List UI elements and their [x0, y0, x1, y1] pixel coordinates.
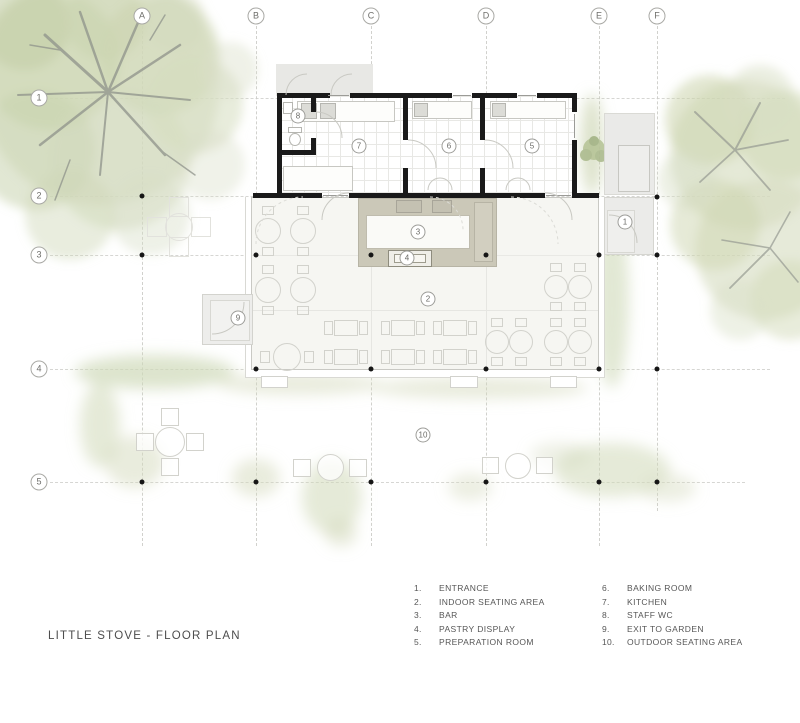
column-dot	[254, 480, 259, 485]
legend-item: 10.OUTDOOR SEATING AREA	[602, 637, 743, 651]
chair	[297, 247, 309, 256]
chair	[416, 321, 425, 335]
table-round	[255, 277, 281, 303]
legend-item-number: 7.	[602, 597, 620, 607]
room-badge-preparation: 5	[525, 139, 540, 154]
chair	[550, 302, 562, 311]
tree-right	[658, 65, 800, 340]
legend-item: 8.STAFF WC	[602, 610, 743, 624]
legend-item-number: 2.	[414, 597, 432, 607]
grid-col-marker: B	[248, 8, 265, 25]
wall-segment	[277, 150, 316, 155]
room-badge-indoor-seating: 2	[421, 292, 436, 307]
table-round	[544, 330, 568, 354]
wall-segment	[472, 93, 517, 98]
wall-segment	[349, 193, 545, 198]
chair	[324, 350, 333, 364]
chair-outdoor	[136, 433, 154, 451]
wc-toilet-bowl	[289, 133, 301, 146]
room-badge-bar: 3	[411, 225, 426, 240]
table-square	[443, 320, 467, 336]
wall-segment	[253, 193, 322, 198]
wall-segment	[311, 97, 316, 112]
wall-segment	[480, 168, 485, 193]
chair	[381, 321, 390, 335]
column-dot	[655, 253, 660, 258]
chair	[550, 318, 562, 327]
legend-item: 1.ENTRANCE	[414, 583, 545, 597]
table-round	[544, 275, 568, 299]
legend-item-label: KITCHEN	[627, 597, 667, 607]
wall-segment	[480, 97, 485, 140]
legend-column-2: 6.BAKING ROOM7.KITCHEN8.STAFF WC9.EXIT T…	[602, 583, 743, 651]
legend-item: 7.KITCHEN	[602, 597, 743, 611]
column-dot	[597, 367, 602, 372]
column-dot	[369, 480, 374, 485]
drawing-title: LITTLE STOVE - FLOOR PLAN	[48, 630, 241, 642]
chair	[262, 206, 274, 215]
window-line	[546, 195, 571, 196]
shrub-plant	[580, 136, 607, 162]
legend-item-number: 4.	[414, 624, 432, 634]
legend-item-number: 8.	[602, 610, 620, 620]
table-round	[568, 330, 592, 354]
room-badge-staff-wc: 8	[291, 109, 306, 124]
chair-outdoor	[349, 459, 367, 477]
deck-step	[450, 376, 478, 388]
grid-row-marker: 3	[31, 247, 48, 264]
table-round	[290, 277, 316, 303]
legend-item-label: OUTDOOR SEATING AREA	[627, 637, 743, 647]
table-round	[568, 275, 592, 299]
wall-segment	[572, 140, 577, 197]
bar-espresso-machine	[432, 200, 452, 213]
room-badge-baking: 6	[442, 139, 457, 154]
table-square	[391, 349, 415, 365]
chair	[491, 357, 503, 366]
chair-outdoor	[161, 408, 179, 426]
grid-row-marker: 5	[31, 474, 48, 491]
legend-item-label: BAR	[439, 610, 458, 620]
chair	[297, 265, 309, 274]
kitchen-island	[283, 166, 353, 191]
legend-item-label: PREPARATION ROOM	[439, 637, 534, 647]
chair	[468, 321, 477, 335]
column-dot	[597, 480, 602, 485]
table-round	[273, 343, 301, 371]
window-line	[328, 95, 349, 96]
back-canopy	[276, 64, 373, 96]
column-dot	[484, 367, 489, 372]
baking-oven	[414, 103, 428, 117]
chair	[381, 350, 390, 364]
column-dot	[140, 194, 145, 199]
legend-item-number: 9.	[602, 624, 620, 634]
legend-item-label: EXIT TO GARDEN	[627, 624, 704, 634]
column-dot	[597, 253, 602, 258]
service-porch-inner	[618, 145, 650, 192]
column-dot	[655, 195, 660, 200]
column-dot	[140, 253, 145, 258]
grid-row-marker: 1	[31, 90, 48, 107]
legend-item-number: 10.	[602, 637, 620, 647]
legend-item-label: INDOOR SEATING AREA	[439, 597, 545, 607]
chair	[416, 350, 425, 364]
column-dot	[254, 253, 259, 258]
column-dot	[484, 480, 489, 485]
grid-col-marker: A	[134, 8, 151, 25]
legend-item-label: STAFF WC	[627, 610, 673, 620]
wall-segment	[277, 93, 282, 197]
legend-item: 6.BAKING ROOM	[602, 583, 743, 597]
window-line	[453, 95, 471, 96]
grid-col-marker: E	[591, 8, 608, 25]
wall-segment	[572, 193, 599, 198]
chair-outdoor	[147, 217, 167, 237]
legend-item: 2.INDOOR SEATING AREA	[414, 597, 545, 611]
table-square	[334, 349, 358, 365]
chair-outdoor	[186, 433, 204, 451]
legend-item-number: 3.	[414, 610, 432, 620]
chair	[304, 351, 314, 363]
chair	[324, 321, 333, 335]
legend-item-label: ENTRANCE	[439, 583, 489, 593]
legend-item-number: 1.	[414, 583, 432, 593]
chair	[468, 350, 477, 364]
chair	[262, 306, 274, 315]
grid-col-line	[142, 26, 143, 546]
chair	[297, 206, 309, 215]
column-dot	[254, 367, 259, 372]
chair-outdoor	[169, 237, 189, 257]
tree-top-left	[0, 0, 258, 260]
wall-segment	[277, 93, 330, 98]
grid-col-marker: F	[649, 8, 666, 25]
chair	[574, 318, 586, 327]
grid-row-marker: 4	[31, 361, 48, 378]
wall-segment	[537, 93, 577, 98]
chair-outdoor	[191, 217, 211, 237]
room-badge-outdoor-seating: 10	[416, 428, 431, 443]
table-square	[391, 320, 415, 336]
column-dot	[369, 367, 374, 372]
deck-step	[261, 376, 288, 388]
legend-item: 3.BAR	[414, 610, 545, 624]
grid-row-marker: 2	[31, 188, 48, 205]
table-round	[290, 218, 316, 244]
column-dot	[369, 253, 374, 258]
chair	[433, 321, 442, 335]
legend-item: 4.PASTRY DISPLAY	[414, 624, 545, 638]
tree-top-left-branches	[18, 12, 195, 200]
legend-item-number: 5.	[414, 637, 432, 647]
chair-outdoor	[293, 459, 311, 477]
chair	[359, 321, 368, 335]
wall-segment	[572, 93, 577, 112]
room-badge-garden-exit: 9	[231, 311, 246, 326]
legend-item-label: PASTRY DISPLAY	[439, 624, 515, 634]
kitchen-appliance	[320, 103, 336, 119]
wall-segment	[403, 168, 408, 193]
wall-segment	[350, 93, 452, 98]
wall-segment	[403, 97, 408, 140]
legend-item: 5.PREPARATION ROOM	[414, 637, 545, 651]
prep-appliance	[492, 103, 506, 117]
chair-outdoor	[482, 457, 499, 474]
legend-item-number: 6.	[602, 583, 620, 593]
chair	[515, 318, 527, 327]
chair	[260, 351, 270, 363]
table-square	[443, 349, 467, 365]
chair	[433, 350, 442, 364]
chair-outdoor	[161, 458, 179, 476]
legend-item: 9.EXIT TO GARDEN	[602, 624, 743, 638]
table-round	[255, 218, 281, 244]
room-badge-pastry-display: 4	[400, 251, 415, 266]
chair	[550, 263, 562, 272]
room-badge-kitchen: 7	[352, 139, 367, 154]
chair	[262, 247, 274, 256]
legend-item-label: BAKING ROOM	[627, 583, 692, 593]
bar-sink	[396, 200, 422, 213]
room-badge-entrance: 1	[618, 215, 633, 230]
chair	[491, 318, 503, 327]
window-line	[518, 95, 536, 96]
column-dot	[484, 253, 489, 258]
table-round-outdoor	[317, 454, 344, 481]
chair-outdoor	[536, 457, 553, 474]
deck-step	[550, 376, 577, 388]
window-line	[323, 195, 348, 196]
table-round	[509, 330, 533, 354]
table-round-outdoor	[155, 427, 185, 457]
chair	[574, 357, 586, 366]
chair	[550, 357, 562, 366]
table-round	[485, 330, 509, 354]
chair	[359, 350, 368, 364]
chair	[515, 357, 527, 366]
chair	[297, 306, 309, 315]
chair	[574, 263, 586, 272]
chair	[574, 302, 586, 311]
column-dot	[655, 480, 660, 485]
legend-column-1: 1.ENTRANCE2.INDOOR SEATING AREA3.BAR4.PA…	[414, 583, 545, 651]
window-line	[574, 114, 575, 138]
floor-plan-canvas: A B C D E F 1 2 3 4 5 1 2 3 4 5 6 7 8 9 …	[0, 0, 800, 723]
grid-col-marker: C	[363, 8, 380, 25]
grid-row-line	[50, 482, 745, 483]
column-dot	[655, 367, 660, 372]
chair	[262, 265, 274, 274]
table-square	[334, 320, 358, 336]
chair-outdoor	[169, 197, 189, 217]
column-dot	[140, 480, 145, 485]
grid-col-marker: D	[478, 8, 495, 25]
table-round-outdoor	[505, 453, 531, 479]
